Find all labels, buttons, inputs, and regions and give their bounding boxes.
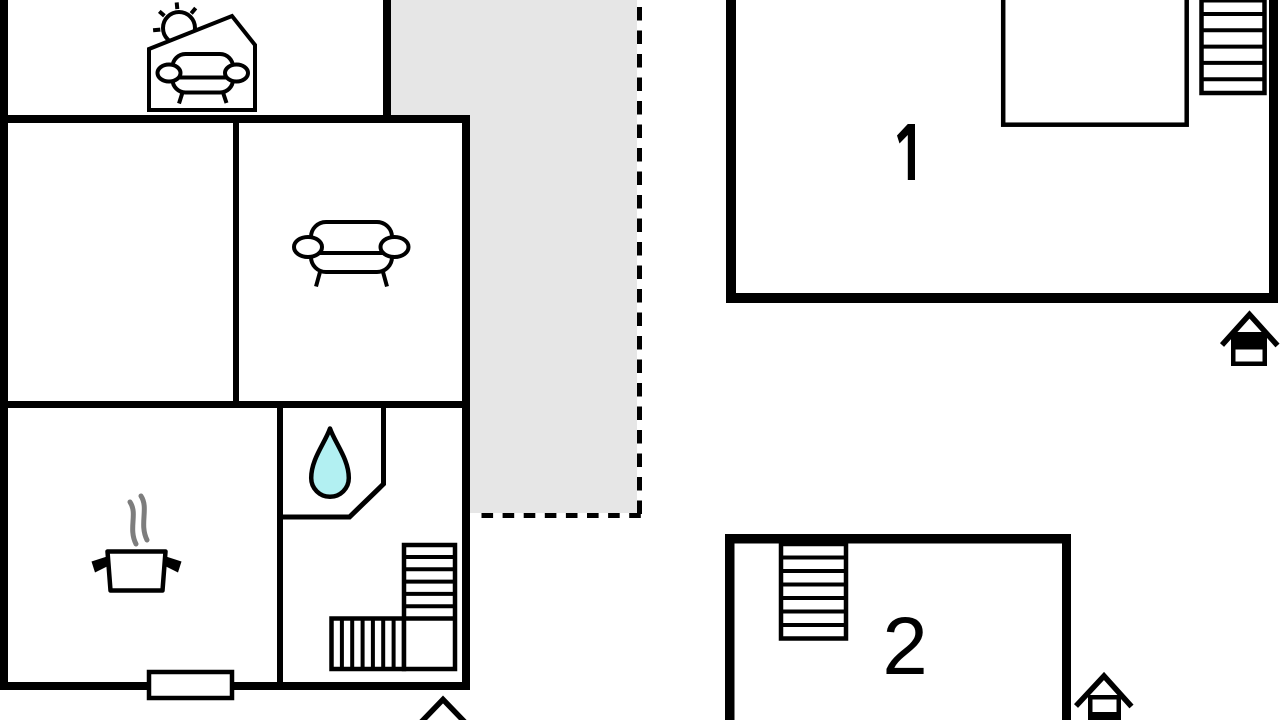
svg-text:2: 2 — [882, 601, 927, 692]
